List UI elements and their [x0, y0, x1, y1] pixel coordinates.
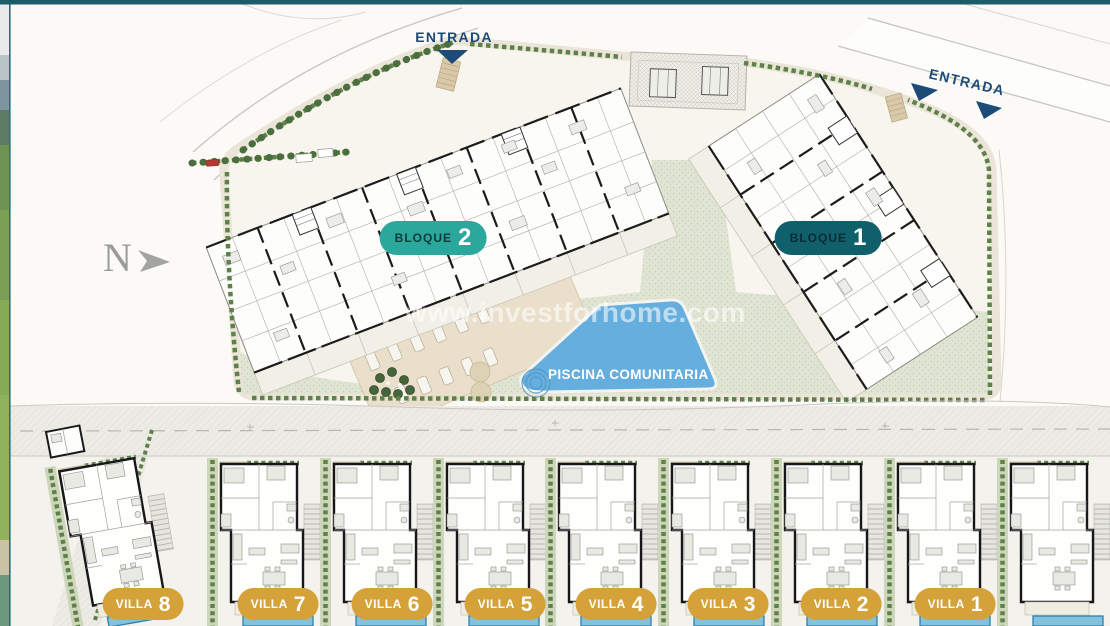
entrada-label-top-left: ENTRADA: [402, 29, 506, 45]
bloque-1-name: BLOQUE: [790, 231, 847, 245]
bloque-1-badge: BLOQUE 1: [775, 221, 882, 255]
villa-2-badge: VILLA 2: [801, 588, 882, 620]
villa-8-badge: VILLA 8: [103, 588, 184, 620]
site-plan: ENTRADA ENTRADA N BLOQUE 2 BLOQUE 1 PISC…: [0, 0, 1110, 626]
photo-edge-strip: [0, 4, 11, 626]
bloque-2-badge: BLOQUE 2: [380, 221, 487, 255]
villa-5-badge: VILLA 5: [465, 588, 546, 620]
north-arrow-icon: [138, 250, 170, 272]
villa-3-badge: VILLA 3: [688, 588, 769, 620]
bloque-2-number: 2: [458, 226, 471, 250]
villa-7-badge: VILLA 7: [238, 588, 319, 620]
utility-enclosure: [629, 52, 747, 110]
north-label: N: [103, 234, 132, 281]
villa-4-badge: VILLA 4: [576, 588, 657, 620]
watermark: www.investforhome.com: [405, 297, 746, 329]
bloque-1-number: 1: [853, 226, 866, 250]
bloque-2-name: BLOQUE: [395, 231, 452, 245]
villa-1-badge: VILLA 1: [915, 588, 996, 620]
top-border-bar: [0, 0, 1110, 5]
villa-outbuilding: [46, 426, 84, 458]
community-pool-label: PISCINA COMUNITARIA: [548, 367, 709, 382]
villa-6-badge: VILLA 6: [352, 588, 433, 620]
